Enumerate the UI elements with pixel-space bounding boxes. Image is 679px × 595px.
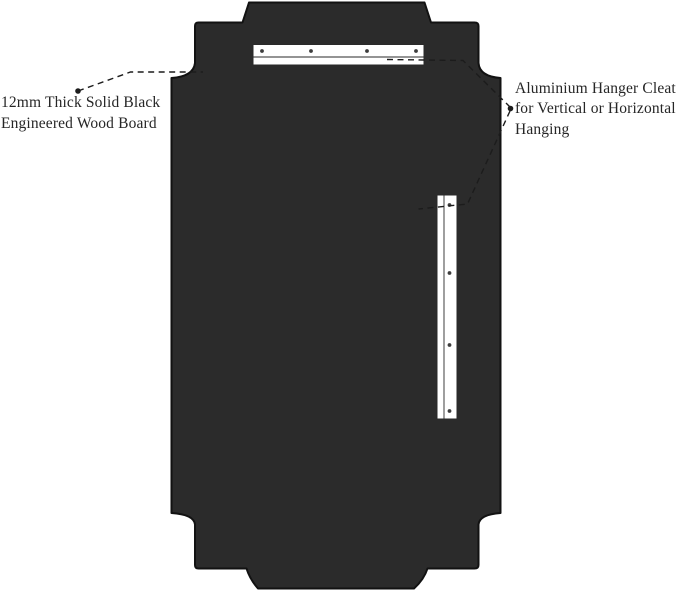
screw: [260, 49, 264, 53]
screw: [448, 343, 452, 347]
annotation-board-line-1: 12mm Thick Solid Black: [1, 92, 160, 113]
horizontal-hanger-cleat: [253, 45, 424, 66]
annotation-board-line-2: Engineered Wood Board: [1, 113, 160, 134]
vertical-hanger-cleat: [437, 195, 457, 419]
annotation-cleat-line-3: Hanging: [515, 120, 676, 140]
screw: [309, 49, 313, 53]
annotation-cleat-line-1: Aluminium Hanger Cleat: [515, 79, 676, 99]
screw: [448, 409, 452, 413]
screw: [365, 49, 369, 53]
product-diagram: 12mm Thick Solid Black Engineered Wood B…: [0, 0, 679, 595]
vertical-cleat-bar: [437, 195, 457, 419]
annotation-cleat-line-2: for Vertical or Horizontal: [515, 99, 676, 119]
horizontal-cleat-bar: [253, 45, 424, 66]
screw: [414, 49, 418, 53]
callout-dot-cleat: [508, 106, 514, 112]
screw: [448, 271, 452, 275]
annotation-board-label: 12mm Thick Solid Black Engineered Wood B…: [1, 92, 160, 134]
annotation-cleat-label: Aluminium Hanger Cleat for Vertical or H…: [515, 79, 676, 140]
